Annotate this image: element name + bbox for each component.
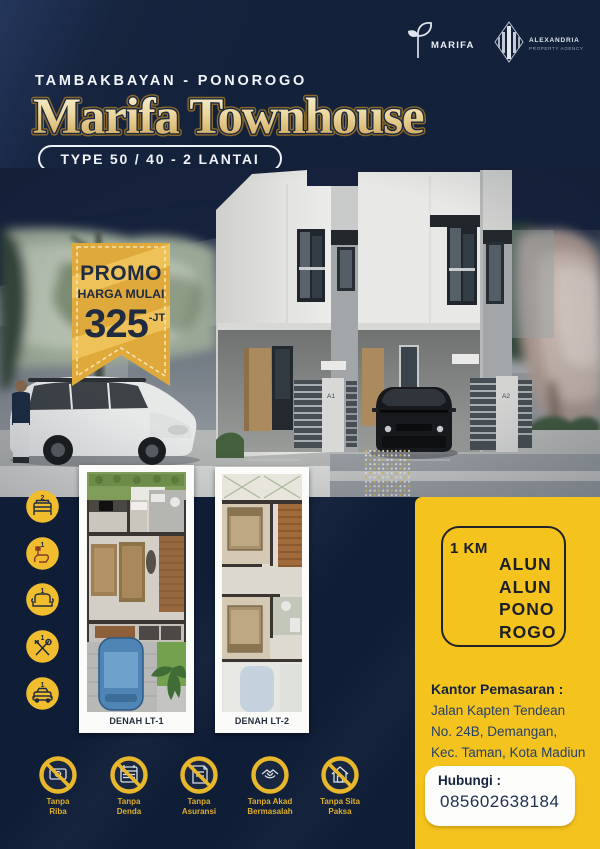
svg-text:PROPERTY AGENCY: PROPERTY AGENCY bbox=[529, 46, 584, 51]
svg-text:PROMO: PROMO bbox=[80, 262, 162, 285]
svg-text:1: 1 bbox=[41, 635, 45, 642]
svg-text:1: 1 bbox=[41, 542, 45, 549]
svg-text:325: 325 bbox=[84, 302, 148, 346]
svg-text:MARIFA: MARIFA bbox=[431, 40, 475, 51]
svg-text:HARGA MULAI: HARGA MULAI bbox=[78, 287, 165, 301]
svg-text:-JT: -JT bbox=[149, 312, 166, 324]
svg-text:Marifa Townhouse: Marifa Townhouse bbox=[33, 89, 424, 145]
svg-text:ALEXANDRIA: ALEXANDRIA bbox=[529, 37, 580, 44]
